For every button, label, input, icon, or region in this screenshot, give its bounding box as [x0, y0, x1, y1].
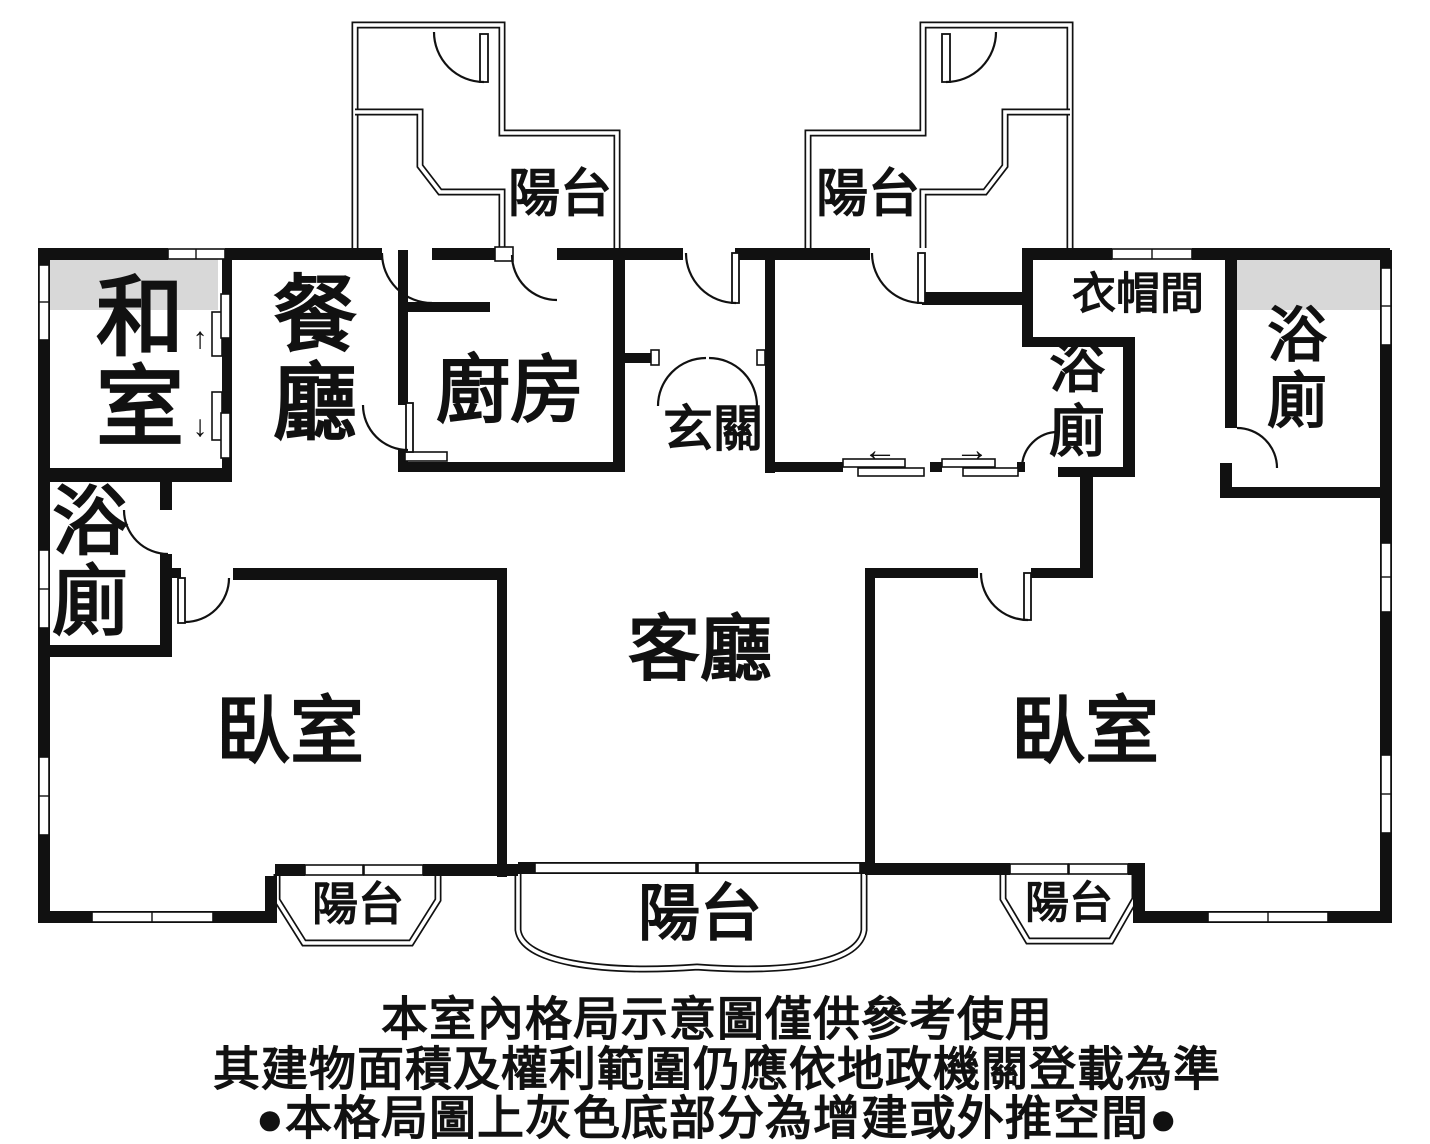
wall-bedroom-left-right	[497, 568, 507, 877]
wall-corridor-bottom	[775, 462, 843, 472]
door-jamb	[757, 350, 765, 365]
down-arrow-icon: ↓	[193, 410, 208, 443]
footnote-line2: 其建物面積及權利範圍仍應依地政機關登載為準	[213, 1042, 1221, 1095]
footnotes: 本室內格局示意圖僅供參考使用 其建物面積及權利範圍仍應依地政機關登載為準 ●本格…	[213, 992, 1221, 1144]
wall-bath-left	[160, 478, 172, 510]
wall-bath-right-left	[1225, 250, 1237, 428]
door-leaf	[178, 578, 185, 623]
door-arc	[185, 578, 229, 622]
sliding-door	[221, 413, 230, 458]
wall-alcove-right	[922, 292, 1022, 305]
label-balcony-bottom-center: 陽台	[638, 879, 762, 948]
wall-bedroom-right-left	[865, 568, 875, 875]
footnote-line3: ●本格局圖上灰色底部分為增建或外推空間●	[256, 1091, 1179, 1144]
door-arc	[686, 253, 736, 303]
label-bath-left: 浴廁	[52, 480, 129, 645]
wall-kitchen-counter	[403, 302, 490, 312]
wall-bath-right-bottom	[1220, 487, 1390, 498]
sliding-door	[535, 863, 696, 873]
right-arrow-icon: →	[955, 431, 989, 469]
sliding-door	[221, 294, 230, 338]
door-arc	[124, 510, 168, 554]
wall-bath-inner-right	[1123, 337, 1135, 477]
door-arc	[709, 358, 757, 406]
footnote-line1: 本室內格局示意圖僅供參考使用	[381, 992, 1053, 1045]
door-arc	[946, 32, 996, 82]
label-balcony-top-left: 陽台	[508, 166, 612, 224]
sliding-door	[405, 452, 447, 461]
door-jamb	[651, 350, 659, 365]
windows	[39, 247, 1391, 922]
door-leaf	[480, 34, 488, 82]
up-arrow-icon: ↑	[193, 322, 208, 355]
door-arc	[872, 253, 922, 303]
room-labels: 和室 餐廳 廚房 玄關 客廳 臥室 臥室 浴廁 浴廁 浴廁 衣帽間 陽台 陽台 …	[52, 166, 1328, 949]
label-living: 客廳	[628, 610, 772, 690]
door-arc	[434, 32, 484, 82]
sliding-door	[858, 468, 924, 476]
label-foyer: 玄關	[663, 401, 763, 457]
wall-vestibule-right	[765, 250, 775, 473]
door-leaf	[732, 253, 739, 303]
label-tatami: 和室	[96, 268, 184, 457]
sliding-door	[305, 865, 363, 875]
label-kitchen: 廚房	[436, 349, 584, 432]
walls	[38, 248, 1392, 923]
door-leaf	[1024, 573, 1031, 620]
door-leaf	[942, 34, 950, 82]
label-dining: 餐廳	[273, 268, 357, 450]
door-leaf	[406, 403, 413, 452]
wall-bath-inner-bottom	[1058, 467, 1135, 477]
sliding-door	[698, 863, 860, 873]
label-bedroom-left: 臥室	[216, 690, 364, 773]
label-balcony-bottom-right: 陽台	[1025, 879, 1113, 928]
label-bath-inner: 浴廁	[1049, 336, 1106, 463]
label-balcony-bottom-left: 陽台	[312, 878, 404, 930]
sliding-door	[364, 865, 423, 875]
wall-kitchen-left	[398, 250, 408, 405]
floorplan-svg: ↑ ↓ ← → 和室 餐廳 廚房 玄關 客廳 臥室 臥室 浴廁 浴廁 浴廁 衣帽…	[0, 0, 1430, 1144]
wall-vestibule-left	[613, 250, 625, 472]
balcony-outlines	[277, 25, 1135, 969]
door-arc	[981, 573, 1028, 620]
door-leaf	[918, 253, 925, 303]
door-jamb	[495, 247, 513, 261]
wall-bedroom-left-top	[233, 568, 507, 580]
door-arc	[363, 405, 408, 450]
wall-bedroom-right-top	[865, 568, 978, 578]
left-arrow-icon: ←	[863, 431, 897, 469]
sliding-door	[963, 468, 1018, 476]
label-closet: 衣帽間	[1072, 270, 1204, 319]
label-bath-right: 浴廁	[1267, 302, 1328, 435]
sliding-door	[1010, 864, 1068, 874]
wall-kitchen-bottom	[398, 462, 623, 472]
label-balcony-top-right: 陽台	[816, 166, 920, 224]
label-bedroom-right: 臥室	[1011, 690, 1159, 773]
floorplan-page: ↑ ↓ ← → 和室 餐廳 廚房 玄關 客廳 臥室 臥室 浴廁 浴廁 浴廁 衣帽…	[0, 0, 1430, 1144]
door-arc	[512, 255, 557, 300]
sliding-door	[1069, 864, 1128, 874]
wall-closet-left	[1022, 250, 1033, 347]
wall-top	[38, 248, 168, 260]
door-arc	[658, 358, 706, 406]
